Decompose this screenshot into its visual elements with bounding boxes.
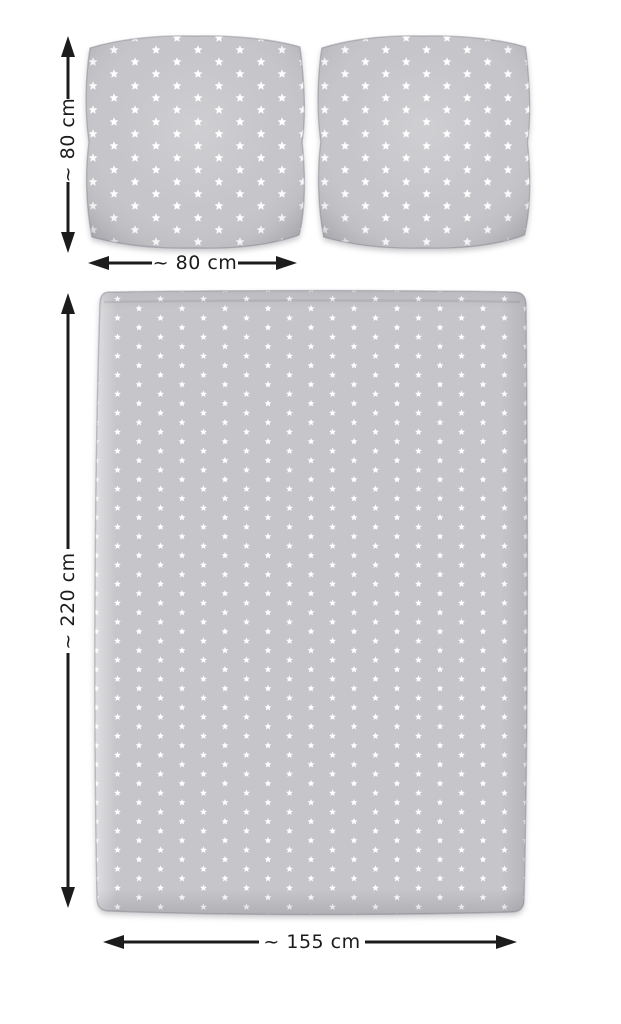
duvet-graphic [95, 291, 527, 915]
duvet-width-label: ~ 155 cm [252, 930, 372, 954]
duvet-height-label: ~ 220 cm [56, 541, 80, 661]
bedding-dimensions-diagram: ~ 80 cm ~ 80 cm ~ 220 cm ~ 155 cm [0, 0, 621, 1024]
pillow-left-graphic [86, 36, 304, 248]
pillow-width-label: ~ 80 cm [135, 251, 255, 275]
pillow-height-label: ~ 80 cm [56, 80, 80, 200]
bedding-scene-graphic [0, 0, 621, 1024]
pillow-right-graphic [318, 36, 530, 248]
